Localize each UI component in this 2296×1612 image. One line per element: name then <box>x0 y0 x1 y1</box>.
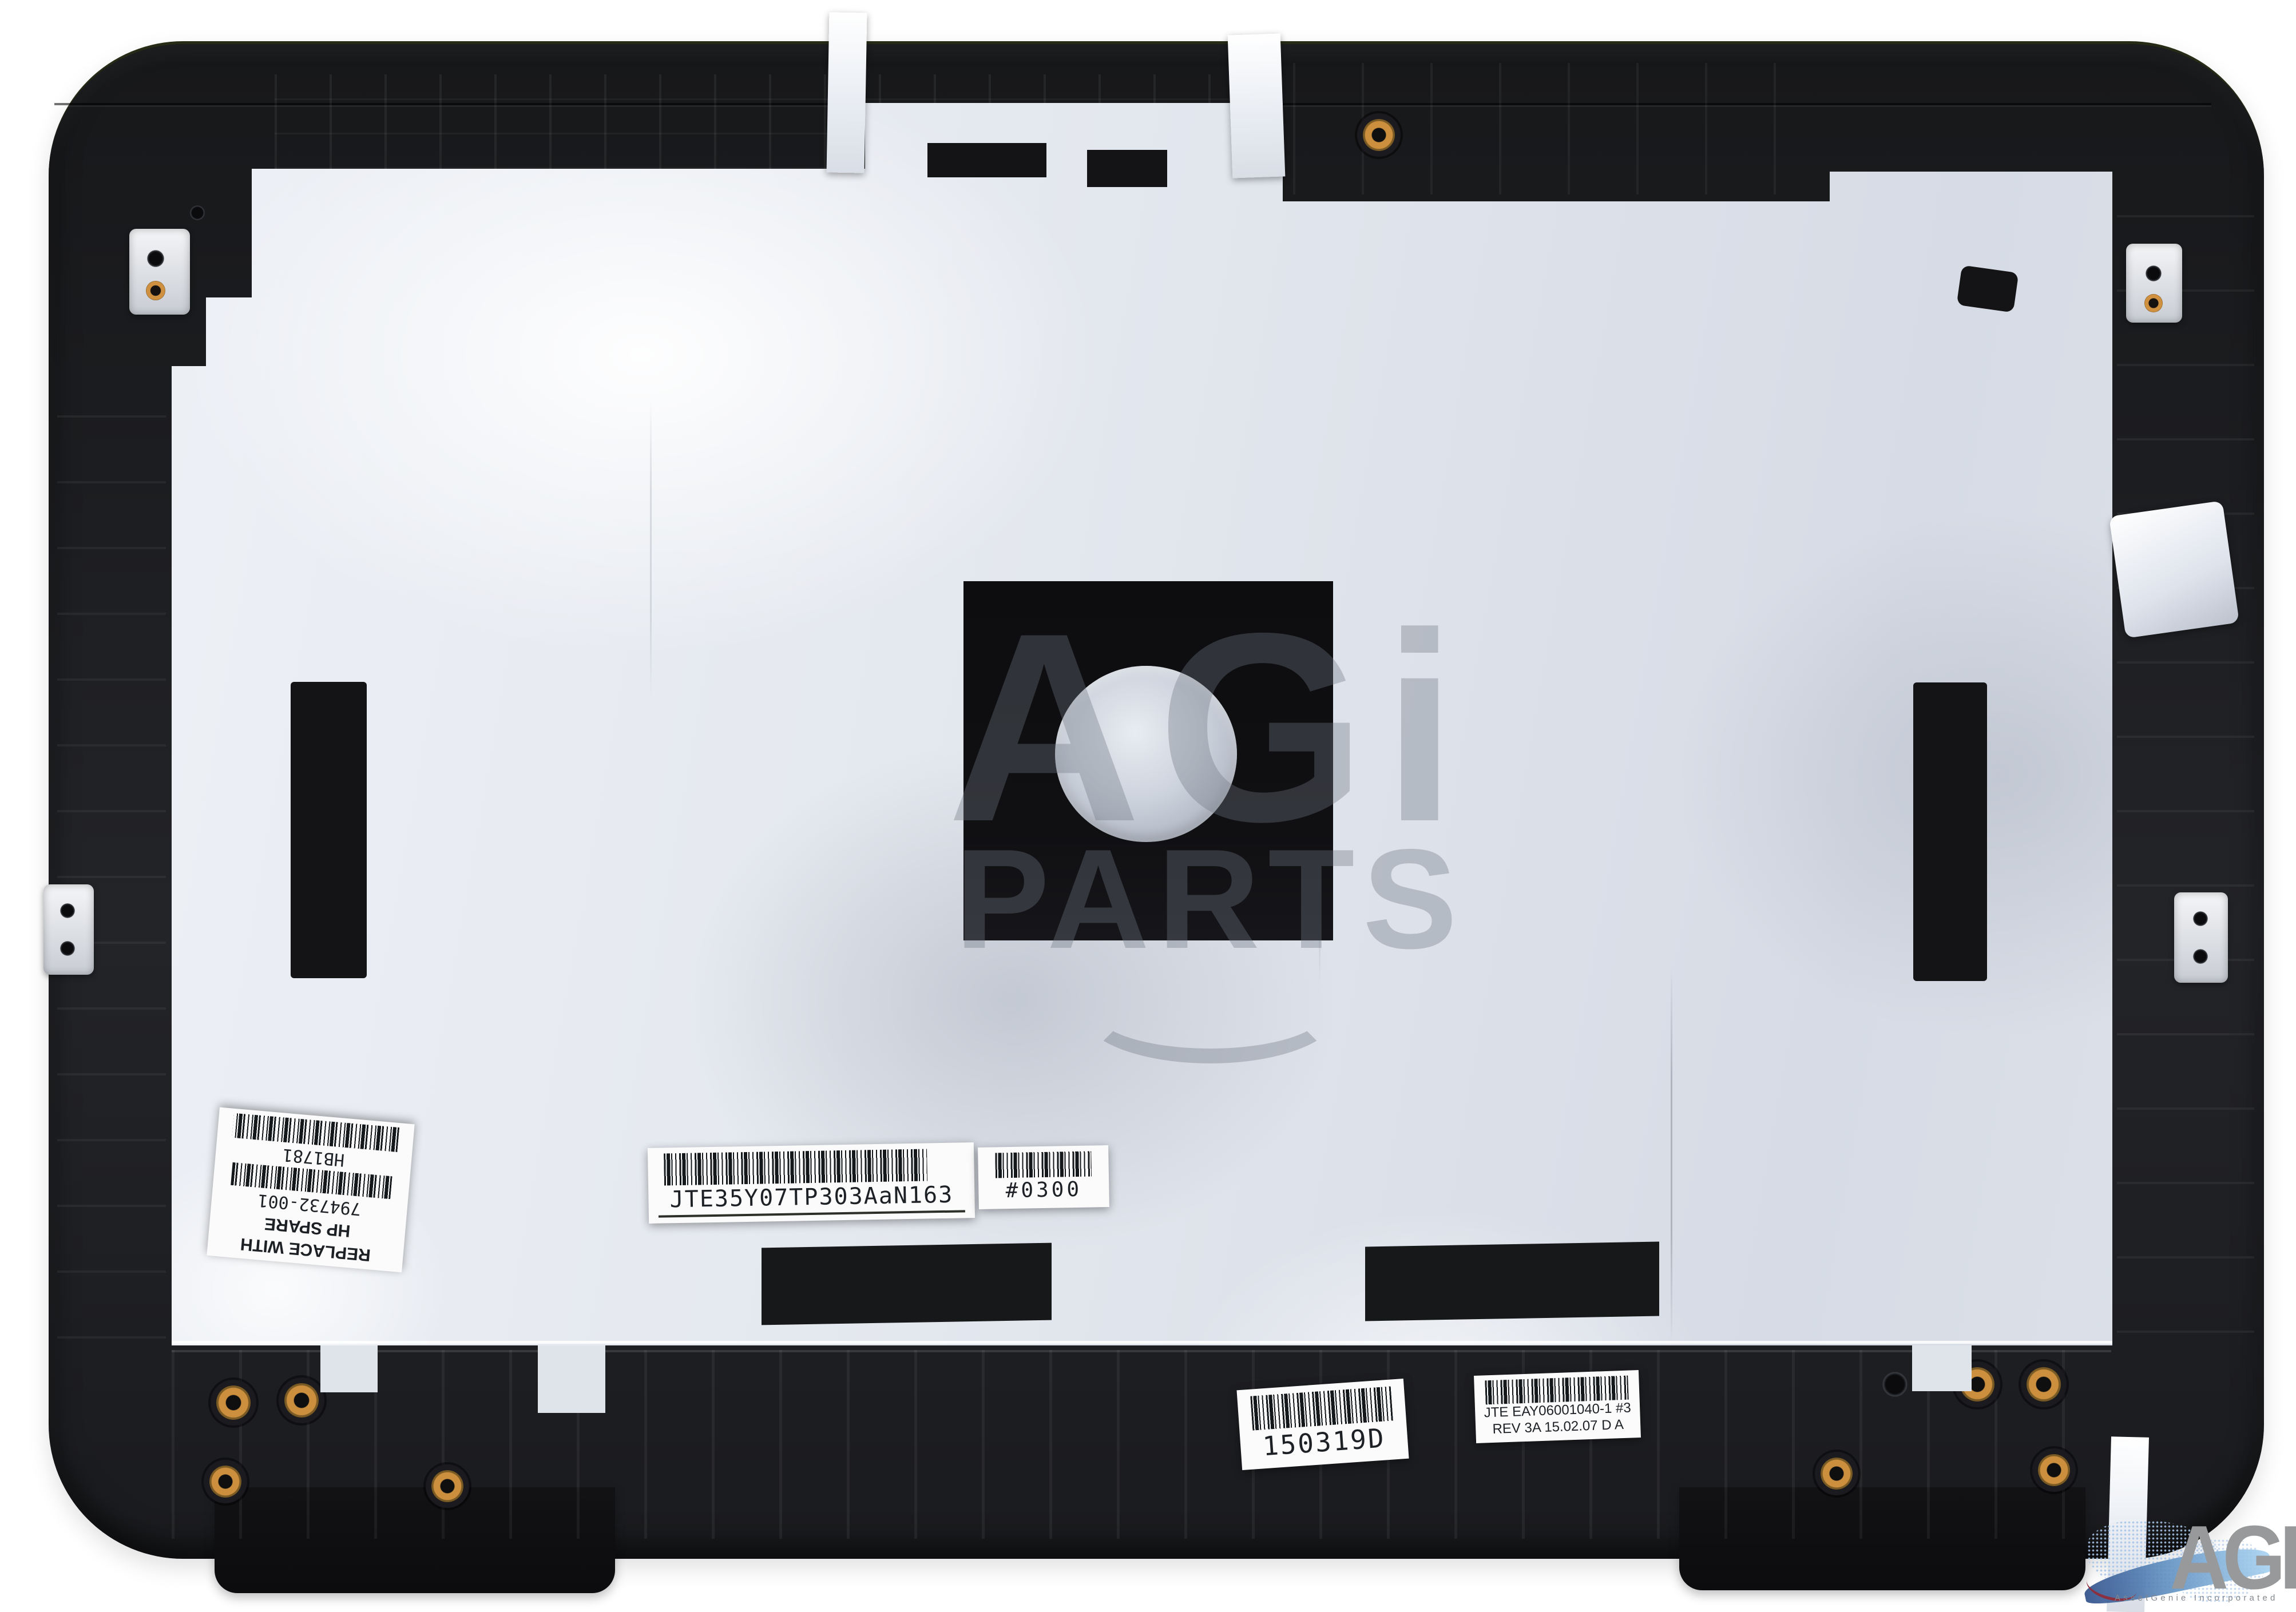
top-left-bracket <box>129 229 190 315</box>
label-code: HB1781 <box>281 1144 345 1170</box>
left-band-molded-ribs <box>57 366 166 1339</box>
brass-boss-icon <box>431 1470 463 1502</box>
brass-screw-icon <box>146 281 165 300</box>
right-band-molded-ribs <box>2117 189 2254 1333</box>
foil-finger <box>538 1345 605 1413</box>
revision-label: JTE EAY06001040-1 #3 REV 3A 15.02.07 D A <box>1474 1370 1641 1443</box>
bottom-band-molded-ribs <box>172 1350 2111 1539</box>
top-right-bracket <box>2126 244 2182 323</box>
bin-code: #0300 <box>1005 1178 1082 1204</box>
barcode-icon <box>995 1151 1092 1178</box>
product-photo-laptop-back-cover: REPLACE WITH HP SPARE 794732-001 HB1781 … <box>0 0 2296 1612</box>
top-foil-cutout <box>927 143 1046 177</box>
brass-boss-icon <box>2038 1454 2070 1486</box>
logo-monogram: AGI <box>2170 1512 2296 1603</box>
brass-boss-icon <box>216 1385 251 1420</box>
mid-left-bracket <box>43 884 94 975</box>
right-antenna-cutout <box>1913 682 1987 981</box>
foil-tab <box>827 12 867 173</box>
assetgenie-logo: AGI AssetGenie Incorporated <box>2087 1517 2296 1612</box>
foil-tab-curled <box>2109 501 2239 638</box>
brass-screw-icon <box>2144 294 2163 312</box>
brass-boss-icon <box>209 1466 241 1498</box>
brass-boss-icon <box>1363 119 1395 151</box>
mid-right-bracket <box>2174 892 2228 983</box>
foil-crease-line <box>1671 967 1672 1344</box>
foil-finger <box>1912 1345 1972 1391</box>
right-foam-pad <box>1365 1242 1659 1321</box>
small-foil-cutout <box>1957 265 2019 312</box>
foil-bottom-edge-highlight <box>172 1341 2112 1344</box>
screw-hole-icon <box>147 250 164 267</box>
top-foil-cutout <box>1087 150 1167 187</box>
watermark-text-top: AGi <box>915 606 1505 848</box>
serial-code: JTE35Y07TP303AaN163 <box>669 1182 953 1214</box>
screw-hole-icon <box>60 941 75 956</box>
foil-finger <box>320 1345 378 1392</box>
brass-boss-icon <box>1821 1458 1853 1490</box>
left-foam-pad <box>762 1243 1052 1325</box>
brass-boss-icon <box>284 1383 319 1418</box>
screw-hole-icon <box>2193 911 2208 926</box>
logo-tagline: AssetGenie Incorporated <box>2115 1593 2278 1603</box>
barcode-icon <box>664 1149 927 1186</box>
foil-crease-line <box>650 400 652 698</box>
serial-label: JTE35Y07TP303AaN163 <box>648 1142 975 1224</box>
hp-spare-label: REPLACE WITH HP SPARE 794732-001 HB1781 <box>207 1107 414 1273</box>
screw-hole-icon <box>1882 1372 1908 1397</box>
screw-hole-icon <box>2146 265 2162 281</box>
screw-hole-icon <box>60 903 75 918</box>
screw-hole-icon <box>190 205 205 220</box>
barcode-icon <box>1485 1375 1628 1404</box>
brass-boss-icon <box>2027 1367 2061 1401</box>
bin-number-label: #0300 <box>978 1145 1109 1209</box>
left-antenna-cutout <box>291 682 367 978</box>
watermark-text-bottom: PARTS <box>915 828 1505 970</box>
date-code-label: 150319D <box>1236 1379 1409 1470</box>
foil-tab <box>1228 33 1286 178</box>
barcode-icon <box>231 1162 392 1199</box>
agiparts-watermark: AGi PARTS <box>915 606 1505 1063</box>
screw-hole-icon <box>2193 949 2208 964</box>
